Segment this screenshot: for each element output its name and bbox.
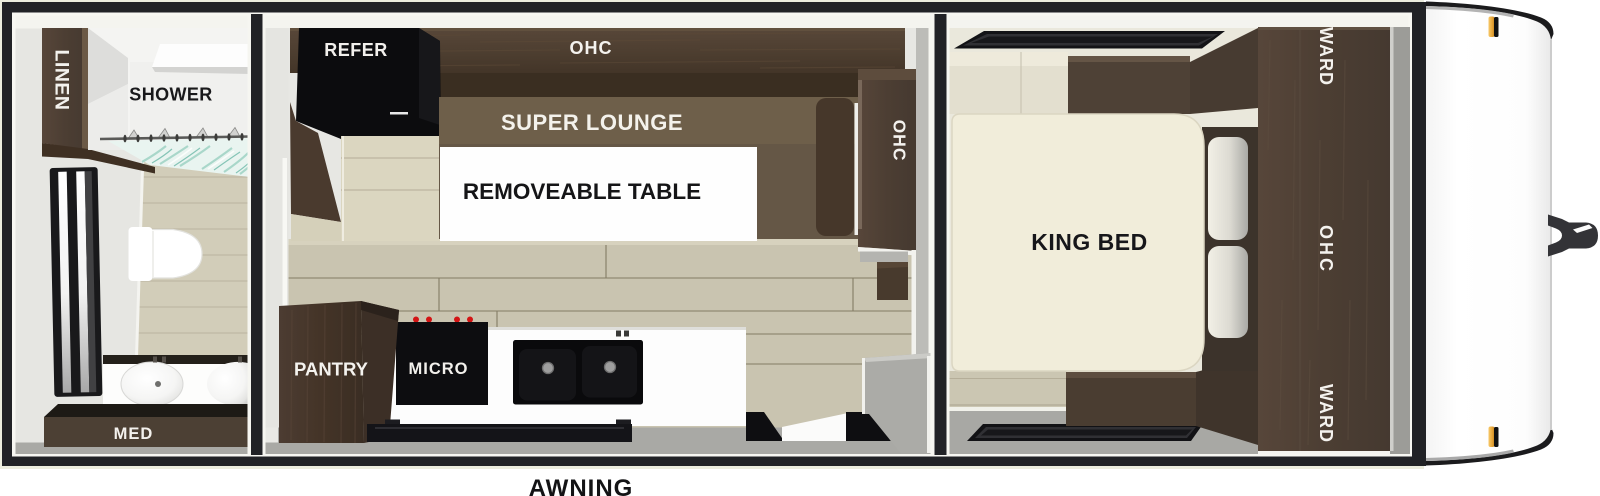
svg-text:MED: MED bbox=[114, 425, 154, 443]
svg-text:OHC: OHC bbox=[1316, 225, 1336, 274]
svg-text:SUPER LOUNGE: SUPER LOUNGE bbox=[501, 110, 683, 135]
svg-text:SHOWER: SHOWER bbox=[129, 85, 212, 105]
svg-text:OHC: OHC bbox=[890, 120, 910, 162]
svg-text:REFER: REFER bbox=[324, 40, 388, 60]
svg-text:MICRO: MICRO bbox=[409, 360, 469, 378]
svg-text:KING BED: KING BED bbox=[1031, 229, 1147, 255]
svg-text:WARD: WARD bbox=[1316, 384, 1336, 443]
svg-text:OHC: OHC bbox=[570, 38, 613, 58]
svg-text:WARD: WARD bbox=[1316, 27, 1336, 86]
svg-text:PANTRY: PANTRY bbox=[294, 359, 369, 380]
svg-text:AWNING: AWNING bbox=[529, 475, 634, 496]
svg-text:REMOVEABLE TABLE: REMOVEABLE TABLE bbox=[463, 179, 701, 204]
svg-text:LINEN: LINEN bbox=[51, 50, 73, 111]
